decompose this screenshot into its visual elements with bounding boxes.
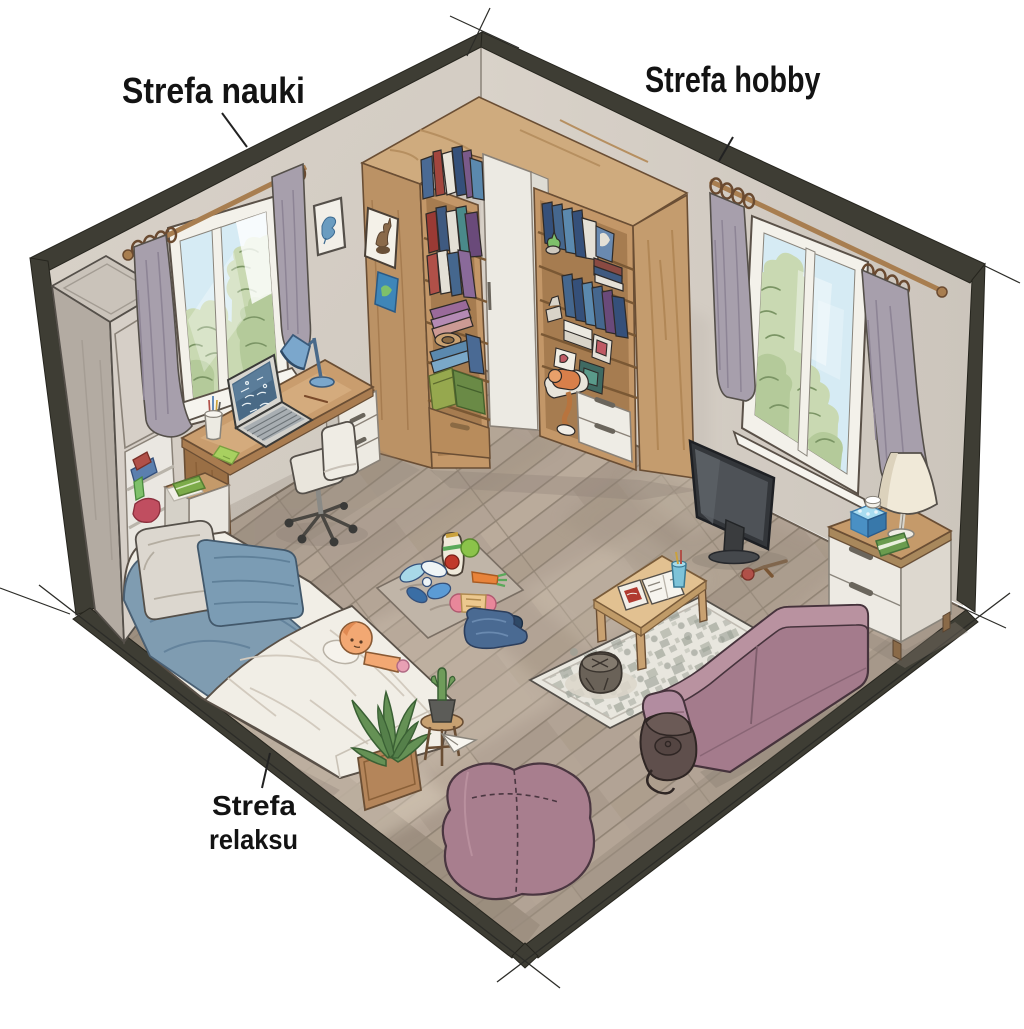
- svg-text:Strefa nauki: Strefa nauki: [122, 71, 305, 111]
- svg-text:relaksu: relaksu: [209, 824, 298, 855]
- svg-text:Strefa hobby: Strefa hobby: [645, 60, 820, 100]
- svg-text:Strefa: Strefa: [212, 791, 297, 822]
